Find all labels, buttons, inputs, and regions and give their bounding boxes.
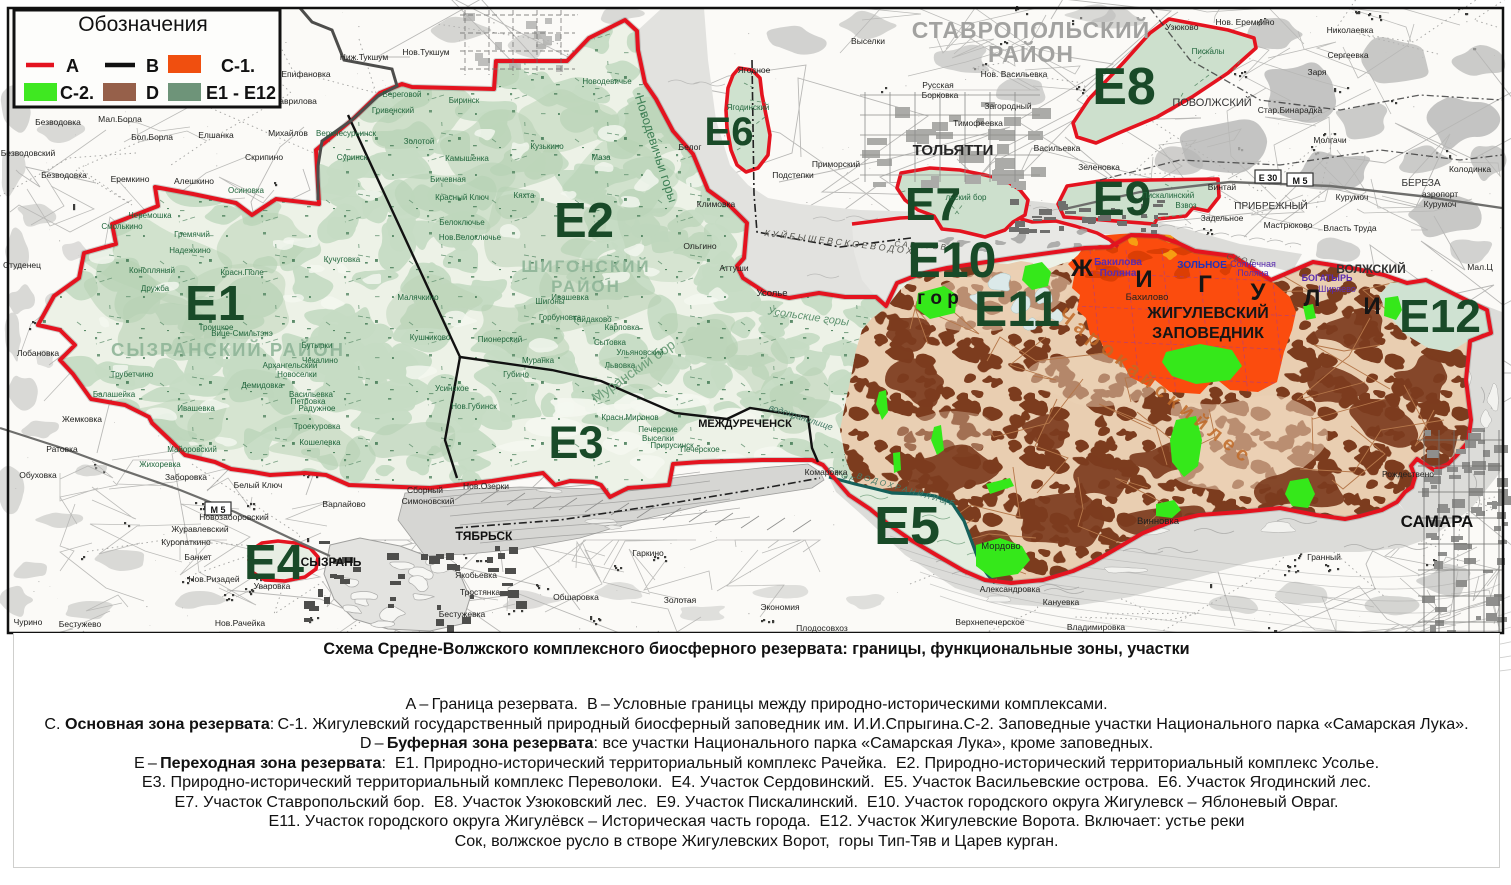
svg-text:Ж: Ж: [1070, 255, 1093, 282]
svg-text:ПРИБРЕЖНЫЙ: ПРИБРЕЖНЫЙ: [1234, 199, 1307, 212]
svg-text:Е2: Е2: [554, 194, 614, 248]
svg-text:Биринск: Биринск: [449, 96, 480, 105]
svg-text:Елшанка: Елшанка: [198, 130, 234, 140]
svg-text:Вице-Смильтэнэ: Вице-Смильтэнэ: [211, 329, 273, 338]
svg-text:Владимировка: Владимировка: [1067, 622, 1126, 632]
svg-text:Плодосовхоз: Плодосовхоз: [796, 623, 848, 633]
svg-text:В: В: [146, 56, 159, 76]
svg-text:Куропаткино: Куропаткино: [161, 537, 211, 547]
svg-text:Зеленовка: Зеленовка: [1078, 162, 1120, 172]
svg-text:Климовка: Климовка: [697, 199, 736, 209]
svg-text:СТАВРОПОЛЬСКИЙ: СТАВРОПОЛЬСКИЙ: [912, 16, 1150, 43]
svg-text:Безводовка: Безводовка: [41, 170, 87, 180]
svg-text:ЗАПОВЕДНИК: ЗАПОВЕДНИК: [1152, 325, 1264, 342]
svg-text:Колодинка: Колодинка: [1449, 164, 1491, 174]
svg-text:Жемковка: Жемковка: [62, 414, 102, 424]
svg-text:Комаровка: Комаровка: [805, 467, 848, 477]
svg-text:Взвоз: Взвоз: [1175, 201, 1197, 210]
svg-text:Осиновка: Осиновка: [228, 186, 264, 195]
svg-text:Верхнесурьинск: Верхнесурьинск: [316, 129, 376, 138]
svg-text:Заря: Заря: [1307, 67, 1326, 77]
svg-text:Нов. Еремкино: Нов. Еремкино: [1216, 17, 1275, 27]
svg-text:Муранка: Муранка: [522, 356, 555, 365]
svg-text:ТЯБРЬСК: ТЯБРЬСК: [456, 529, 513, 543]
svg-text:Усолье: Усолье: [756, 288, 787, 299]
svg-text:Г: Г: [1198, 271, 1212, 298]
svg-text:Кануевка: Кануевка: [1043, 597, 1080, 607]
svg-text:Троекуровка: Троекуровка: [294, 422, 341, 431]
svg-text:Золотая: Золотая: [664, 595, 697, 605]
svg-text:С-2.: С-2.: [60, 83, 94, 103]
svg-text:Трубетчино: Трубетчино: [111, 370, 154, 379]
svg-text:Ивашевка: Ивашевка: [551, 293, 589, 302]
svg-text:Черемошка: Черемошка: [128, 211, 172, 220]
svg-text:Малячкино: Малячкино: [397, 293, 439, 302]
svg-text:Бол.Борла: Бол.Борла: [131, 132, 173, 142]
svg-text:Бутырки: Бутырки: [302, 341, 333, 350]
svg-text:Бакилова: Бакилова: [1094, 257, 1142, 268]
svg-text:Поляна: Поляна: [1237, 268, 1268, 278]
svg-text:Лобановка: Лобановка: [17, 348, 60, 358]
svg-text:Е10: Е10: [908, 232, 997, 288]
svg-text:Сборный: Сборный: [407, 485, 443, 495]
svg-text:Золотой: Золотой: [404, 137, 435, 146]
svg-text:Прирусинск: Прирусинск: [650, 441, 694, 450]
svg-text:Демидовка: Демидовка: [241, 381, 283, 390]
svg-text:Васильевка: Васильевка: [1034, 143, 1081, 153]
svg-text:У: У: [1251, 279, 1267, 306]
svg-text:Ягодное: Ягодное: [738, 65, 771, 75]
svg-text:Смолькино: Смолькино: [101, 222, 143, 231]
svg-text:Новоселки: Новоселки: [277, 370, 317, 379]
svg-text:ПОВОЛЖСКИЙ: ПОВОЛЖСКИЙ: [1172, 96, 1251, 109]
svg-text:Красный Ключ: Красный Ключ: [435, 193, 489, 202]
svg-text:ТОЛЬЯТТИ: ТОЛЬЯТТИ: [913, 142, 994, 159]
svg-text:Тростянка: Тростянка: [460, 587, 501, 597]
svg-text:D: D: [146, 83, 159, 103]
svg-text:Е6: Е6: [705, 110, 754, 154]
svg-text:E1 - E12: E1 - E12: [206, 83, 276, 103]
svg-text:Белоключье: Белоключье: [439, 218, 485, 227]
svg-text:Гремячий: Гремячий: [174, 230, 210, 239]
svg-text:Маза: Маза: [591, 153, 611, 162]
svg-text:Дружба: Дружба: [141, 284, 170, 293]
svg-text:Александровка: Александровка: [980, 584, 1041, 594]
svg-text:Мордово: Мордово: [981, 541, 1020, 552]
svg-text:Нов. Васильевка: Нов. Васильевка: [981, 69, 1048, 79]
svg-text:Молгачи: Молгачи: [1313, 135, 1347, 145]
svg-text:Бичевная: Бичевная: [430, 175, 466, 184]
svg-text:Балашейка: Балашейка: [93, 390, 136, 399]
svg-text:Ивашевка: Ивашевка: [177, 404, 215, 413]
svg-text:Стар.Бинарадка: Стар.Бинарадка: [1258, 105, 1323, 115]
svg-text:Надежкино: Надежкино: [169, 246, 211, 255]
svg-text:Конопляный: Конопляный: [129, 266, 175, 275]
svg-text:Нов.Ризадей: Нов.Ризадей: [188, 574, 239, 584]
svg-text:СЫЗРАНЬ: СЫЗРАНЬ: [301, 555, 362, 569]
svg-text:Бестужевка: Бестужевка: [439, 609, 486, 619]
svg-text:Печерские: Печерские: [638, 425, 678, 434]
svg-text:Пискалы: Пискалы: [1192, 47, 1225, 56]
svg-text:Чурино: Чурино: [14, 617, 43, 627]
svg-text:Жихоревка: Жихоревка: [139, 460, 181, 469]
svg-text:И: И: [1135, 266, 1152, 293]
svg-text:Михайлов: Михайлов: [268, 128, 308, 138]
svg-text:Банкет: Банкет: [184, 552, 211, 562]
svg-text:М 5: М 5: [1292, 176, 1307, 186]
svg-text:Задельное: Задельное: [1201, 213, 1244, 223]
svg-text:Е11: Е11: [974, 281, 1060, 337]
svg-text:Уваровка: Уваровка: [254, 581, 291, 591]
svg-text:Якобьевка: Якобьевка: [455, 570, 497, 580]
svg-text:Верхнепечерское: Верхнепечерское: [955, 617, 1024, 627]
svg-text:Гривенский: Гривенский: [372, 106, 414, 115]
svg-text:Усинское: Усинское: [435, 384, 469, 393]
svg-text:Бахилово: Бахилово: [1126, 292, 1169, 303]
svg-text:ЗОЛЬНОЕ: ЗОЛЬНОЕ: [1177, 260, 1227, 271]
svg-text:Ульяновский: Ульяновский: [616, 348, 663, 357]
svg-text:Новодевичье: Новодевичье: [582, 77, 632, 86]
svg-text:Еремкино: Еремкино: [111, 174, 150, 184]
svg-text:Е12: Е12: [1399, 290, 1481, 342]
svg-text:Майоровский: Майоровский: [167, 445, 217, 454]
svg-text:Мастрюково: Мастрюково: [1264, 220, 1313, 230]
svg-text:Аттуши: Аттуши: [719, 263, 748, 273]
svg-text:Губино: Губино: [503, 370, 529, 379]
svg-text:Заборовка: Заборовка: [165, 472, 207, 482]
svg-text:льский бор: льский бор: [946, 193, 988, 202]
svg-text:Белог: Белог: [679, 142, 702, 152]
svg-text:Борковка: Борковка: [922, 90, 959, 100]
svg-text:Загородный: Загородный: [984, 101, 1032, 111]
svg-text:Поляна: Поляна: [1100, 268, 1137, 279]
svg-text:Обуховка: Обуховка: [19, 470, 57, 480]
svg-text:Ширяево: Ширяево: [1318, 284, 1356, 294]
svg-text:Красн.Миронов: Красн.Миронов: [601, 413, 658, 422]
svg-text:Сергеевка: Сергеевка: [1327, 50, 1368, 60]
svg-text:Львовка: Львовка: [605, 361, 636, 370]
svg-text:Обшаровка: Обшаровка: [553, 592, 599, 602]
svg-text:Нов.Озерки: Нов.Озерки: [463, 481, 509, 491]
svg-text:Подстепки: Подстепки: [772, 170, 814, 180]
svg-text:Симоновский: Симоновский: [402, 496, 455, 506]
svg-text:Нов.Губинск: Нов.Губинск: [451, 402, 497, 411]
svg-text:Пионерский: Пионерский: [478, 335, 522, 344]
svg-text:БЕРЕЗА: БЕРЕЗА: [1401, 178, 1440, 189]
svg-text:Выселки: Выселки: [851, 36, 885, 46]
svg-text:Пискалинский: Пискалинский: [1142, 191, 1194, 200]
svg-text:Кузькино: Кузькино: [530, 142, 564, 151]
svg-text:Курумоч: Курумоч: [1336, 192, 1369, 202]
svg-text:аэропорт: аэропорт: [1422, 189, 1458, 199]
svg-text:Безводовка: Безводовка: [35, 117, 81, 127]
svg-text:Экономия: Экономия: [760, 602, 800, 612]
svg-text:ЖИГУЛЕВСКИЙ: ЖИГУЛЕВСКИЙ: [1146, 303, 1269, 322]
svg-text:Бестужево: Бестужево: [59, 619, 102, 629]
svg-text:С-1.: С-1.: [221, 56, 255, 76]
svg-text:Власть Труда: Власть Труда: [1323, 223, 1377, 233]
svg-text:ШИГОНСКИЙ: ШИГОНСКИЙ: [521, 257, 650, 276]
svg-text:Береговой: Береговой: [383, 90, 422, 99]
svg-text:Ратовка: Ратовка: [46, 444, 78, 454]
svg-text:Нов.Тукшум: Нов.Тукшум: [402, 47, 449, 57]
svg-text:Суринск: Суринск: [337, 153, 368, 162]
svg-text:Ольгино: Ольгино: [683, 241, 716, 251]
svg-text:Винновка: Винновка: [1137, 516, 1180, 527]
svg-text:Радужное: Радужное: [299, 404, 336, 413]
svg-text:БОГАТЫРЬ: БОГАТЫРЬ: [1302, 273, 1353, 283]
svg-text:Николаевка: Николаевка: [1327, 25, 1374, 35]
svg-text:Архангельский: Архангельский: [263, 361, 318, 370]
svg-text:Белый Ключ: Белый Ключ: [234, 480, 283, 490]
svg-text:Е 30: Е 30: [1259, 173, 1278, 183]
svg-text:г о р: г о р: [917, 288, 959, 309]
svg-text:Гаркино: Гаркино: [632, 548, 664, 558]
svg-text:Рождествено: Рождествено: [1382, 469, 1434, 479]
svg-text:Мал.Борла: Мал.Борла: [98, 114, 142, 124]
svg-text:РАЙОН: РАЙОН: [988, 40, 1074, 67]
svg-text:Кучуговка: Кучуговка: [324, 255, 361, 264]
svg-text:Приморский: Приморский: [812, 159, 861, 169]
svg-text:Епифановка: Епифановка: [281, 69, 331, 79]
svg-text:Тимофеевка: Тимофеевка: [953, 118, 1003, 128]
svg-text:Скрипино: Скрипино: [245, 152, 283, 162]
svg-text:Е3: Е3: [548, 417, 603, 468]
svg-text:Сытовка: Сытовка: [594, 338, 626, 347]
svg-text:Кяхта: Кяхта: [514, 191, 535, 200]
svg-text:Варлайово: Варлайово: [322, 499, 365, 509]
svg-text:Винтай: Винтай: [1208, 182, 1237, 192]
svg-text:Алешкино: Алешкино: [174, 176, 214, 186]
svg-text:Русская: Русская: [922, 80, 954, 90]
svg-text:Журавлевский: Журавлевский: [171, 524, 229, 534]
svg-text:Нов.Рачейка: Нов.Рачейка: [215, 618, 265, 628]
svg-text:Е8: Е8: [1092, 58, 1156, 116]
svg-text:Ягодинский: Ягодинский: [727, 103, 770, 112]
svg-text:САМАРА: САМАРА: [1401, 512, 1474, 531]
svg-text:М 5: М 5: [210, 505, 225, 515]
svg-text:Обозначения: Обозначения: [78, 13, 208, 36]
svg-text:Камышенка: Камышенка: [445, 154, 489, 163]
svg-text:МЕЖДУРЕЧЕНСК: МЕЖДУРЕЧЕНСК: [698, 418, 792, 430]
svg-text:Нов.Белоключье: Нов.Белоключье: [439, 233, 502, 242]
svg-text:Е7: Е7: [905, 178, 961, 230]
svg-text:Красн.Поле: Красн.Поле: [220, 268, 264, 277]
svg-text:Карповка: Карповка: [605, 323, 640, 332]
svg-text:Гранный: Гранный: [1307, 552, 1341, 562]
svg-text:Кошелевка: Кошелевка: [299, 438, 341, 447]
svg-text:Курумоч: Курумоч: [1424, 199, 1457, 209]
svg-text:Узюково: Узюково: [1166, 22, 1199, 32]
svg-text:Кушниково: Кушниково: [410, 333, 451, 342]
svg-text:Е5: Е5: [874, 496, 940, 556]
svg-text:Ниж.Тукшум: Ниж.Тукшум: [340, 52, 389, 62]
svg-text:А: А: [66, 56, 79, 76]
svg-text:Мал.Ц: Мал.Ц: [1467, 262, 1493, 272]
svg-text:И: И: [1363, 293, 1380, 320]
